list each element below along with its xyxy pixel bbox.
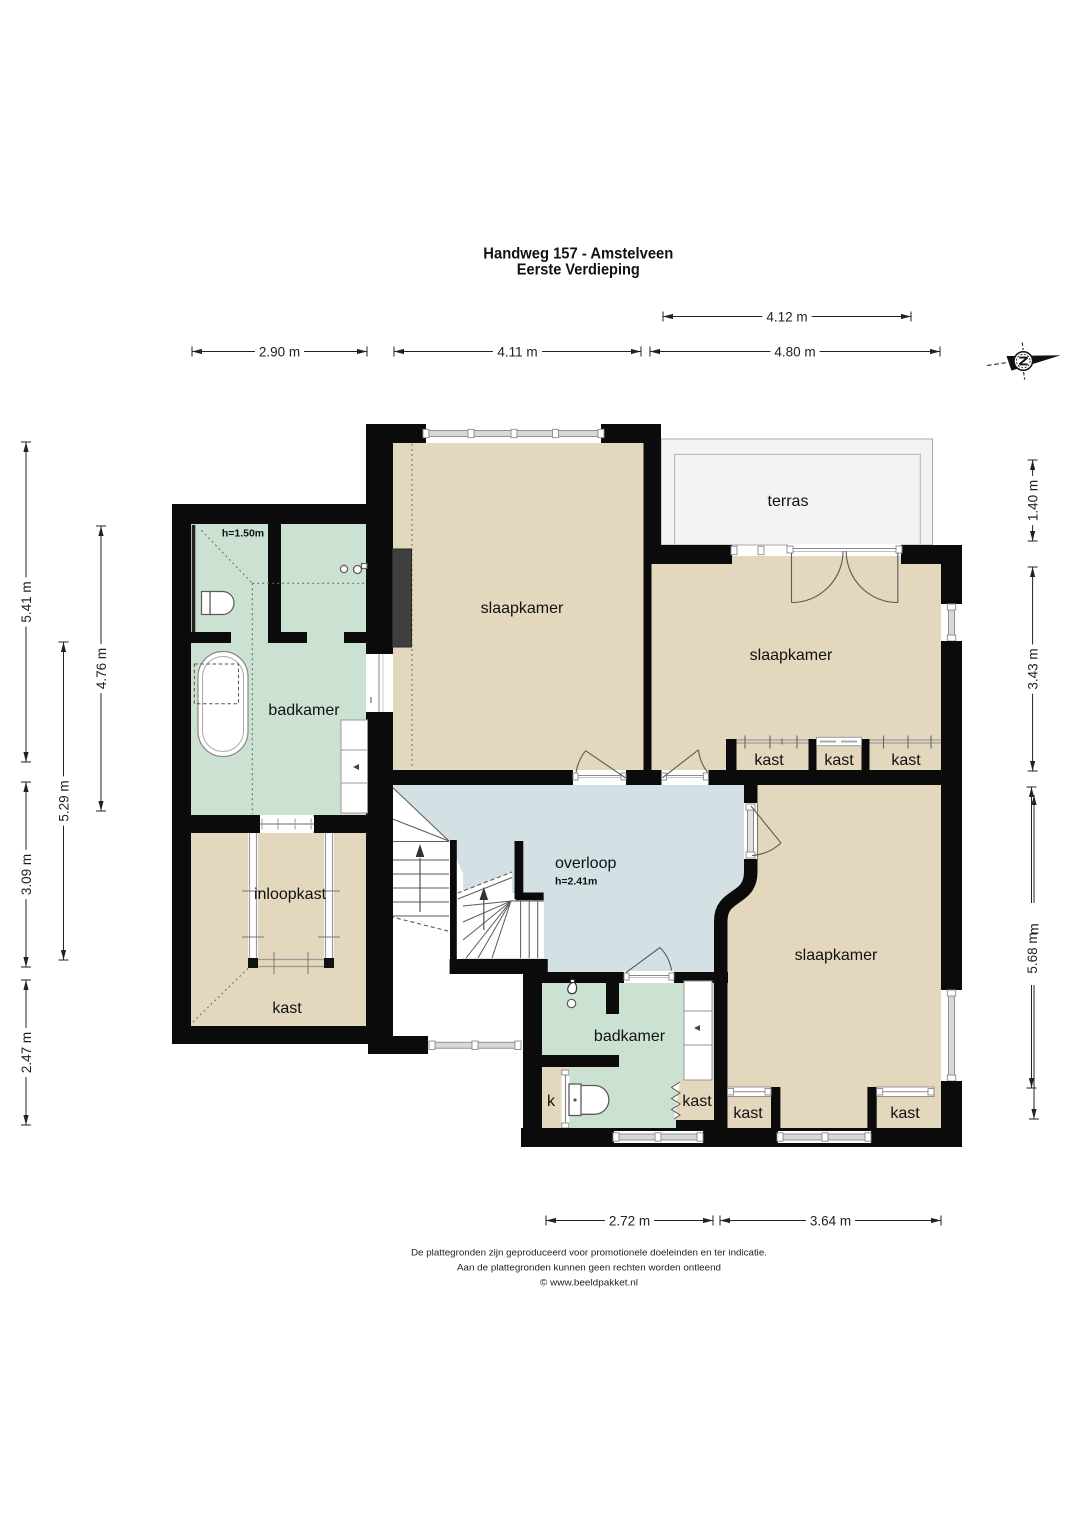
svg-text:slaapkamer: slaapkamer <box>795 947 878 964</box>
svg-text:badkamer: badkamer <box>594 1028 666 1045</box>
svg-text:kast: kast <box>890 1105 920 1122</box>
svg-text:4.80 m: 4.80 m <box>774 344 815 359</box>
svg-text:kast: kast <box>754 752 784 769</box>
svg-text:h=2.41m: h=2.41m <box>555 876 597 888</box>
svg-text:kast: kast <box>891 752 921 769</box>
svg-text:4.76 m: 4.76 m <box>94 648 109 689</box>
svg-text:3.43 m: 3.43 m <box>1025 648 1040 689</box>
svg-text:Aan de plattegronden kunnen ge: Aan de plattegronden kunnen geen rechten… <box>457 1263 721 1274</box>
svg-text:2.72 m: 2.72 m <box>609 1213 650 1228</box>
svg-text:m: m <box>1026 923 1041 934</box>
svg-text:terras: terras <box>768 493 809 510</box>
svg-text:© www.beeldpakket.nl: © www.beeldpakket.nl <box>540 1277 638 1288</box>
svg-text:slaapkamer: slaapkamer <box>481 600 564 617</box>
svg-text:De plattegronden zijn geproduc: De plattegronden zijn geproduceerd voor … <box>411 1248 767 1259</box>
svg-text:5.68 m: 5.68 m <box>1025 932 1040 973</box>
svg-text:badkamer: badkamer <box>268 702 340 719</box>
svg-text:3.09 m: 3.09 m <box>19 854 34 895</box>
svg-text:Handweg 157 - Amstelveen: Handweg 157 - Amstelveen <box>483 245 673 262</box>
svg-text:kast: kast <box>682 1093 712 1110</box>
svg-text:slaapkamer: slaapkamer <box>750 647 833 664</box>
svg-text:overloop: overloop <box>555 855 616 872</box>
svg-text:1.40 m: 1.40 m <box>1025 480 1040 521</box>
svg-text:2.47 m: 2.47 m <box>19 1032 34 1073</box>
svg-text:4.12 m: 4.12 m <box>766 309 807 324</box>
svg-text:h=1.50m: h=1.50m <box>222 528 264 540</box>
svg-text:5.41 m: 5.41 m <box>19 581 34 622</box>
svg-text:k: k <box>547 1093 556 1110</box>
svg-text:inloopkast: inloopkast <box>254 886 327 903</box>
svg-text:2.90 m: 2.90 m <box>259 344 300 359</box>
svg-text:Eerste Verdieping: Eerste Verdieping <box>517 261 640 278</box>
svg-text:3.64 m: 3.64 m <box>810 1213 851 1228</box>
svg-text:kast: kast <box>824 752 854 769</box>
svg-text:kast: kast <box>733 1105 763 1122</box>
svg-text:4.11 m: 4.11 m <box>497 344 537 359</box>
svg-text:5.29 m: 5.29 m <box>56 780 71 821</box>
svg-text:kast: kast <box>272 1000 302 1017</box>
